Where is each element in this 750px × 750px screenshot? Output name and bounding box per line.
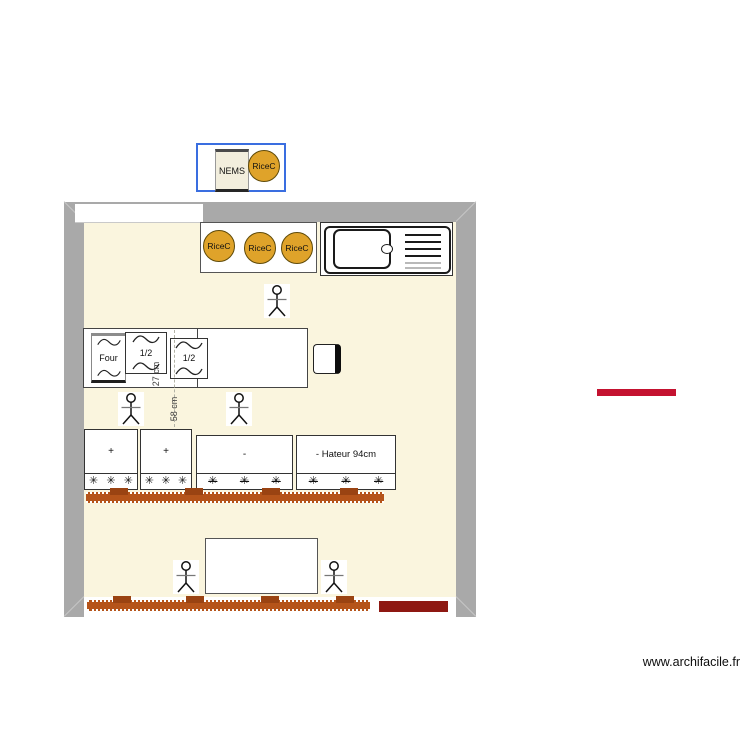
sink-unit[interactable] — [320, 222, 453, 276]
heater-tooth — [262, 488, 280, 495]
person-icon[interactable] — [226, 392, 252, 426]
watermark: www.archifacile.fr — [600, 655, 740, 669]
steam-wave-icon — [96, 337, 122, 348]
worktop-box-1[interactable]: + ✳ ✳ ✳ — [84, 429, 138, 490]
burner-asterisk-icon: ✳ — [89, 476, 98, 487]
burner-strip: ✳ ✳ ✳ — [141, 473, 191, 489]
steam-wave-icon — [131, 334, 161, 345]
worktop-box-4[interactable]: - Hateur 94cm ✳ ✳ ✳ — [296, 435, 396, 490]
rice-cooker-icon[interactable]: RiceC — [281, 232, 313, 264]
drainboard-line — [405, 248, 441, 250]
steam-wave-icon — [174, 340, 204, 351]
drainboard-line — [405, 234, 441, 236]
steam-wave-icon — [174, 366, 204, 377]
rice-cooker-icon[interactable]: RiceC — [244, 232, 276, 264]
drainboard-line — [405, 262, 441, 264]
rice-cooker-icon[interactable]: RiceC — [248, 150, 280, 182]
person-icon[interactable] — [321, 560, 347, 594]
burner-asterisk-icon: ✳ — [106, 476, 115, 487]
drainboard-line — [405, 241, 441, 243]
burner-strip: ✳ ✳ ✳ — [85, 473, 137, 489]
nems-rice-legend-box[interactable]: NEMS RiceC — [196, 143, 286, 192]
heater-tooth — [336, 596, 354, 603]
door-red-bar[interactable] — [379, 601, 448, 612]
heater-tooth — [110, 488, 128, 495]
burner-asterisk-icon: ✳ — [208, 476, 217, 487]
dimension-label-58cm: 58 cm — [169, 389, 181, 429]
rice-cooker-label: RiceC — [285, 243, 308, 253]
drainboard-line — [405, 267, 441, 269]
worktop-label: - — [197, 436, 292, 473]
heater-tooth — [340, 488, 358, 495]
burner-strip: ✳ ✳ ✳ — [297, 473, 395, 489]
heater-tooth — [113, 596, 131, 603]
worktop-box-2[interactable]: + ✳ ✳ ✳ — [140, 429, 192, 490]
heater-tooth — [261, 596, 279, 603]
rice-cooker-label: RiceC — [252, 161, 275, 171]
heater-tooth — [185, 488, 203, 495]
burner-asterisk-icon: ✳ — [145, 476, 154, 487]
burner-asterisk-icon: ✳ — [124, 476, 133, 487]
floor-plan-canvas: NEMS RiceC RiceC RiceC RiceC — [0, 0, 750, 750]
rice-cooker-icon[interactable]: RiceC — [203, 230, 235, 262]
burner-asterisk-icon: ✳ — [161, 476, 170, 487]
half-plate-box-right[interactable]: 1/2 — [170, 338, 208, 379]
heater-strip[interactable] — [86, 492, 384, 503]
burner-asterisk-icon: ✳ — [178, 476, 187, 487]
burner-asterisk-icon: ✳ — [240, 476, 249, 487]
rice-cooker-label: RiceC — [248, 243, 271, 253]
mini-appliance[interactable] — [313, 344, 341, 374]
burner-asterisk-icon: ✳ — [272, 476, 281, 487]
rice-cooker-shelf[interactable]: RiceC RiceC RiceC — [200, 222, 317, 273]
heater-tooth — [186, 596, 204, 603]
kitchen-room: RiceC RiceC RiceC — [64, 202, 476, 617]
oven-counter[interactable]: Four 1/2 1/2 — [83, 328, 308, 388]
oven-box[interactable]: Four — [91, 333, 126, 383]
heater-strip[interactable] — [87, 600, 370, 611]
nems-box[interactable]: NEMS — [215, 149, 249, 192]
worktop-label: + — [141, 430, 191, 473]
dimension-label-27cm: 27 cm — [151, 354, 163, 394]
half-plate-label: 1/2 — [183, 354, 196, 363]
worktop-label: + — [85, 430, 137, 473]
burner-asterisk-icon: ✳ — [341, 476, 350, 487]
drainboard-line — [405, 255, 441, 257]
person-icon[interactable] — [173, 560, 199, 594]
rice-cooker-label: RiceC — [207, 241, 230, 251]
wall-left — [64, 202, 84, 617]
window-opening[interactable] — [75, 204, 203, 223]
steam-wave-icon — [96, 368, 122, 379]
burner-asterisk-icon: ✳ — [309, 476, 318, 487]
person-icon[interactable] — [118, 392, 144, 426]
person-icon[interactable] — [264, 284, 290, 318]
worktop-label: - Hateur 94cm — [297, 436, 395, 473]
burner-strip: ✳ ✳ ✳ — [197, 473, 292, 489]
burner-asterisk-icon: ✳ — [374, 476, 383, 487]
sink-drain-icon — [381, 244, 393, 254]
worktop-box-3[interactable]: - ✳ ✳ ✳ — [196, 435, 293, 490]
bottom-table[interactable] — [205, 538, 318, 594]
oven-label: Four — [99, 354, 118, 363]
nems-label: NEMS — [219, 166, 245, 176]
marker-red-bar[interactable] — [597, 389, 676, 396]
wall-right — [456, 202, 476, 617]
